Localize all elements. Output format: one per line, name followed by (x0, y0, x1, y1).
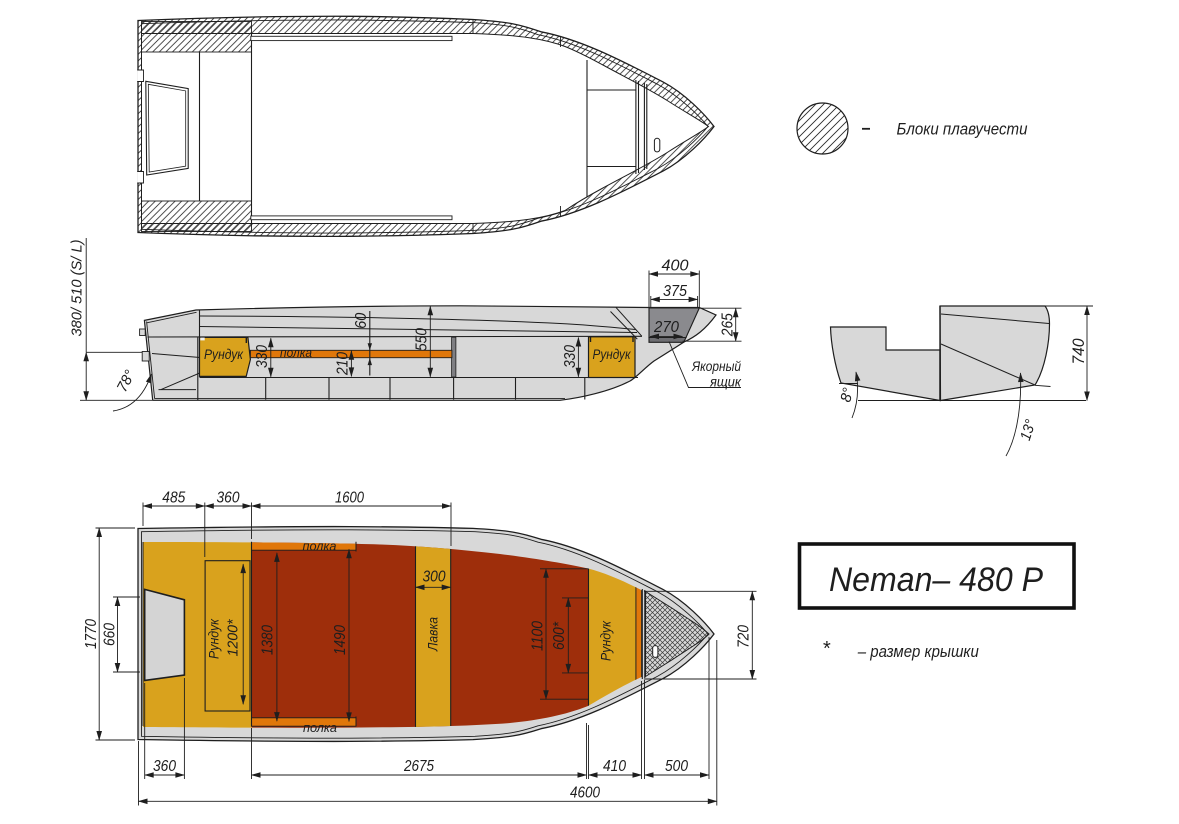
svg-text:Neman– 480 P: Neman– 480 P (829, 561, 1043, 599)
svg-text:Рундук: Рундук (206, 618, 221, 659)
svg-text:1200*: 1200* (224, 618, 241, 656)
svg-text:1380: 1380 (260, 625, 277, 655)
svg-text:1490: 1490 (332, 625, 349, 655)
svg-text:400: 400 (662, 257, 689, 274)
svg-text:600*: 600* (551, 621, 568, 650)
svg-text:500: 500 (665, 758, 688, 775)
svg-text:270: 270 (653, 319, 679, 336)
svg-text:660: 660 (102, 623, 119, 646)
svg-text:1100: 1100 (530, 621, 547, 651)
svg-text:330: 330 (562, 345, 579, 368)
svg-text:полка: полка (303, 540, 337, 554)
svg-text:8°: 8° (837, 386, 857, 404)
svg-text:265: 265 (719, 313, 736, 337)
svg-text:Блоки плавучести: Блоки плавучести (897, 120, 1028, 139)
svg-text:1770: 1770 (83, 619, 100, 649)
svg-text:– размер крышки: – размер крышки (857, 643, 979, 661)
svg-text:375: 375 (663, 283, 687, 300)
svg-text:360: 360 (153, 758, 176, 775)
svg-text:2675: 2675 (403, 758, 434, 775)
svg-text:300: 300 (423, 569, 446, 586)
svg-text:360: 360 (217, 490, 240, 507)
svg-text:Лавка: Лавка (425, 617, 440, 652)
svg-text:380/ 510 (S/ L): 380/ 510 (S/ L) (69, 240, 86, 337)
svg-text:Якорный: Якорный (691, 358, 741, 374)
svg-text:550: 550 (414, 328, 431, 351)
svg-text:410: 410 (603, 758, 626, 775)
svg-text:210: 210 (335, 352, 352, 376)
svg-text:4600: 4600 (570, 784, 600, 801)
svg-text:полка: полка (280, 346, 312, 360)
svg-text:330: 330 (254, 345, 271, 368)
svg-text:78°: 78° (114, 367, 139, 394)
svg-text:Рундук: Рундук (598, 620, 613, 661)
svg-text:13°: 13° (1017, 417, 1040, 442)
svg-text:Рундук: Рундук (593, 347, 632, 362)
svg-text:ящик: ящик (709, 374, 742, 390)
svg-text:485: 485 (162, 490, 185, 507)
svg-text:полка: полка (303, 721, 337, 735)
svg-text:60: 60 (353, 313, 370, 329)
svg-text:740: 740 (1069, 338, 1088, 364)
svg-text:720: 720 (736, 625, 753, 648)
svg-text:1600: 1600 (335, 490, 364, 507)
svg-text:*: * (822, 638, 831, 660)
svg-text:Рундук: Рундук (204, 347, 244, 362)
